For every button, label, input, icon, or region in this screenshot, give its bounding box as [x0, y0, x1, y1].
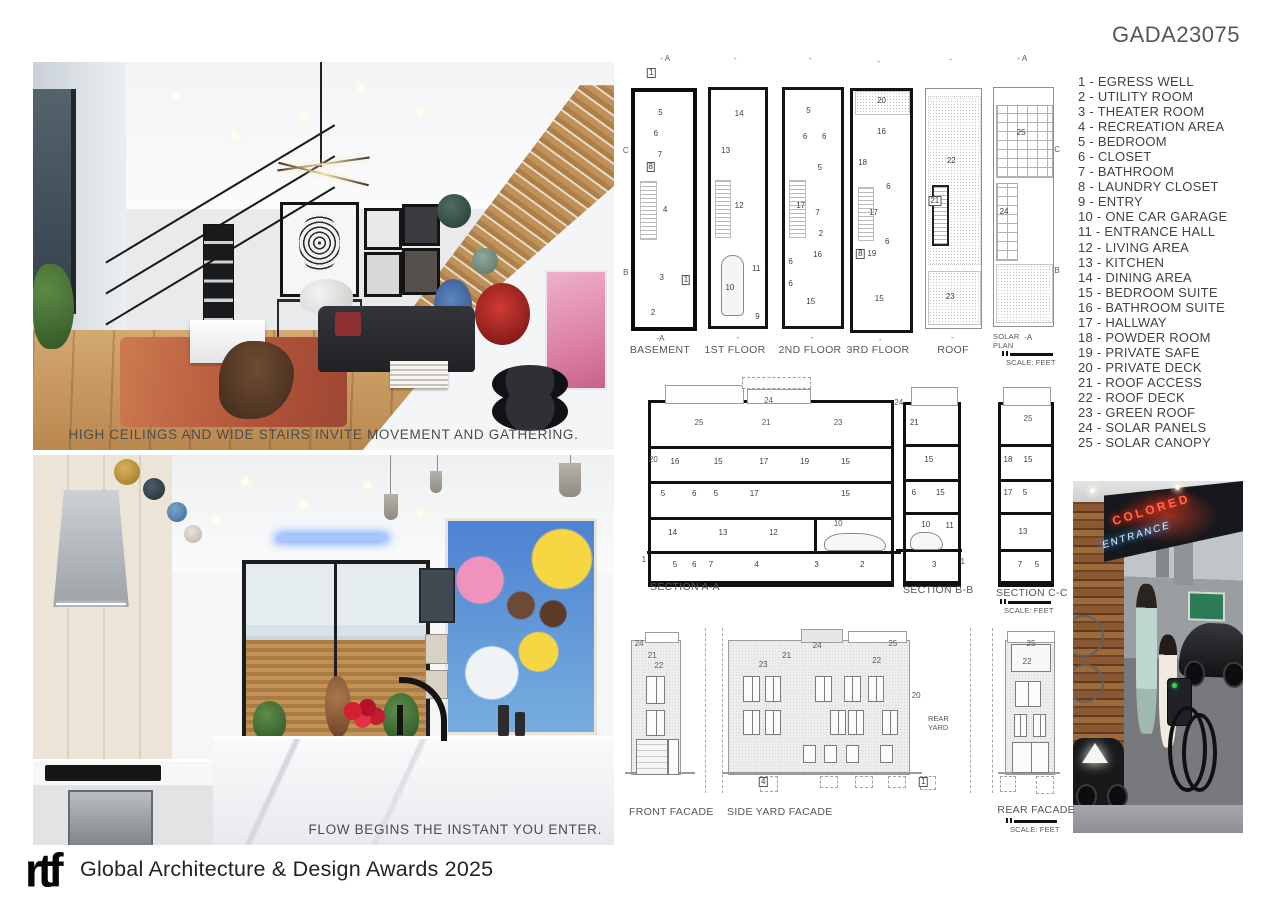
plan-label: 3RD FLOOR — [830, 344, 926, 356]
room-number: 15 — [806, 298, 815, 306]
room-number: 1 — [647, 68, 655, 78]
plan-solar: 2524- ACB-A — [993, 87, 1054, 327]
room-number: 2 — [860, 561, 864, 569]
room-number: - — [734, 55, 737, 63]
legend-item: 11 - ENTRANCE HALL — [1078, 224, 1258, 239]
room-number: 15 — [841, 490, 850, 498]
room-number: 24 — [1000, 208, 1009, 216]
room-number: - — [879, 336, 882, 344]
room-number: 19 — [800, 458, 809, 466]
floor-slab — [906, 444, 958, 447]
room-number: 25 — [695, 419, 704, 427]
facade-number: 25 — [888, 640, 897, 648]
round-red-artwork — [475, 283, 530, 345]
room-number: 7 — [1018, 561, 1022, 569]
car-wheel — [1223, 661, 1243, 688]
room-number: 4 — [754, 561, 758, 569]
mural-woman — [1136, 583, 1157, 734]
room-number: 10 — [725, 284, 734, 292]
photo-living-hall: HIGH CEILINGS AND WIDE STAIRS INVITE MOV… — [33, 62, 614, 450]
pendant-cord — [390, 455, 391, 494]
facade-number: 21 — [648, 652, 657, 660]
solar-plan-label: SOLAR PLAN — [993, 333, 1023, 350]
foundation-pit — [1000, 776, 1016, 792]
legend-item: 6 - CLOSET — [1078, 149, 1258, 164]
ceiling-light — [1175, 485, 1180, 490]
ceiling-light — [1090, 488, 1095, 493]
legend-item: 19 - PRIVATE SAFE — [1078, 345, 1258, 360]
room-number: 17 — [750, 490, 759, 498]
room-number: 10 — [921, 521, 930, 529]
room-number: - A — [1017, 55, 1027, 63]
bottle — [498, 705, 510, 736]
solar-canopy — [848, 631, 908, 643]
floor-slab — [906, 479, 958, 482]
room-number: - — [737, 334, 740, 342]
window — [844, 676, 860, 702]
ground-line — [722, 772, 922, 774]
window — [646, 676, 664, 705]
pendant-cord — [320, 62, 322, 167]
facade-front: 242122 — [631, 640, 681, 775]
room-number: 6 — [822, 133, 826, 141]
facade-label: FRONT FACADE — [629, 806, 719, 818]
legend-item: 3 - THEATER ROOM — [1078, 104, 1258, 119]
window — [1033, 714, 1047, 737]
facade-label: REAR FACADE — [985, 804, 1075, 816]
black-pouf — [492, 392, 568, 431]
room-number: 14 — [735, 110, 744, 118]
legend-item: 9 - ENTRY — [1078, 194, 1258, 209]
room-number: 8 — [646, 162, 654, 172]
room-number: 5 — [661, 490, 665, 498]
foundation-pit — [1036, 776, 1054, 794]
cooktop — [45, 765, 161, 781]
legend-item: 18 - POWDER ROOM — [1078, 330, 1258, 345]
solar-canopy-outline — [1003, 387, 1051, 406]
room-number: 15 — [875, 295, 884, 303]
scale-label: SCALE: FEET — [1010, 825, 1060, 834]
window — [868, 676, 884, 702]
room-number: 15 — [841, 458, 850, 466]
property-line — [705, 628, 706, 793]
room-number: -A — [657, 335, 665, 343]
board-code: GADA23075 — [1112, 22, 1240, 48]
awards-title: Global Architecture & Design Awards 2025 — [80, 857, 493, 882]
room-number: - — [877, 58, 880, 66]
room-number: C — [1054, 146, 1060, 154]
presentation-board: GADA23075 — [0, 0, 1273, 900]
roof-structure — [645, 632, 679, 643]
legend-item: 22 - ROOF DECK — [1078, 390, 1258, 405]
room-number: 6 — [654, 130, 658, 138]
ground-slab — [896, 549, 962, 552]
legend-item: 17 - HALLWAY — [1078, 315, 1258, 330]
section-label: SECTION B-B — [903, 584, 1003, 596]
room-number: 25 — [1017, 129, 1026, 137]
solar-panel-dashed — [742, 377, 811, 389]
garage-floor — [1073, 805, 1243, 833]
scale-label: SCALE: FEET — [1004, 606, 1054, 615]
window — [1014, 714, 1028, 737]
photo-caption: HIGH CEILINGS AND WIDE STAIRS INVITE MOV… — [33, 427, 614, 442]
room-number: 23 — [946, 293, 955, 301]
room-number: - — [809, 55, 812, 63]
plan-1st-floor: 14131210119-- — [708, 87, 768, 329]
photo-garage-mural: COLORED ENTRANCE — [1073, 481, 1243, 833]
solar-canopy-grid — [996, 105, 1053, 178]
room-number: 12 — [769, 529, 778, 537]
foundation-pit — [820, 776, 838, 788]
neon-script-sign — [276, 535, 388, 541]
plant — [253, 701, 285, 740]
plan-roof: 222123-- — [925, 88, 982, 329]
basement-window — [803, 745, 816, 763]
room-number: C — [623, 147, 629, 155]
magazine-stack — [390, 361, 448, 388]
room-number: 6 — [788, 280, 792, 288]
ground-slab — [647, 551, 901, 554]
section-b-b: 242115615101131 — [903, 402, 961, 587]
pendant-light — [384, 494, 398, 520]
legend-item: 20 - PRIVATE DECK — [1078, 360, 1258, 375]
scale-bar — [1008, 353, 1053, 356]
plan-label: ROOF — [915, 344, 991, 356]
framed-photo — [364, 252, 402, 297]
red-roses — [338, 697, 387, 732]
roof-bulkhead — [801, 629, 843, 643]
section-c-c: 2518151751375 — [998, 402, 1054, 587]
floor-slab — [1001, 479, 1051, 482]
property-line — [970, 628, 971, 793]
mural-sign — [1188, 591, 1224, 621]
facade-number: 25 — [1027, 640, 1036, 648]
room-number: 6 — [692, 490, 696, 498]
stairs — [715, 180, 731, 239]
basement-window — [846, 745, 859, 763]
section-label: SECTION C-C — [996, 587, 1096, 599]
garage-wall — [814, 517, 817, 551]
room-number: 18 — [1004, 456, 1013, 464]
room-number: 3 — [932, 561, 936, 569]
window — [830, 710, 846, 735]
room-number: 6 — [788, 258, 792, 266]
room-number: 13 — [719, 529, 728, 537]
legend-item: 16 - BATHROOM SUITE — [1078, 300, 1258, 315]
garage-door — [636, 739, 668, 774]
facade-number: 20 — [912, 692, 921, 700]
faucet-stem — [397, 705, 403, 735]
photo-caption: FLOW BEGINS THE INSTANT YOU ENTER. — [33, 822, 614, 837]
framed-photo — [402, 204, 440, 247]
stairs — [640, 181, 657, 239]
room-number: 6 — [885, 238, 889, 246]
legend-item: 10 - ONE CAR GARAGE — [1078, 209, 1258, 224]
room-number: 2 — [819, 230, 823, 238]
room-number: 17 — [796, 202, 805, 210]
colorful-mural — [448, 521, 593, 732]
room-number: 17 — [1004, 489, 1013, 497]
room-number: 4 — [663, 206, 667, 214]
room-number: 16 — [671, 458, 680, 466]
legend-item: 12 - LIVING AREA — [1078, 240, 1258, 255]
room-number: 1 — [642, 556, 646, 564]
side-window — [419, 568, 455, 623]
property-line — [722, 628, 723, 793]
room-number: 13 — [1019, 528, 1028, 536]
room-number: 24 — [894, 399, 903, 407]
room-number: 20 — [877, 97, 886, 105]
scale-bar — [1006, 601, 1051, 604]
floor-slab — [651, 446, 891, 449]
photo-kitchen: FLOW BEGINS THE INSTANT YOU ENTER. — [33, 455, 614, 845]
legend-item: 7 - BATHROOM — [1078, 164, 1258, 179]
facade-side-yard: 23212425222041 — [728, 640, 910, 775]
property-line — [992, 628, 993, 793]
legend-item: 8 - LAUNDRY CLOSET — [1078, 179, 1258, 194]
room-number: 5 — [806, 107, 810, 115]
plan-2nd-floor: 56651772166615-- — [782, 87, 844, 329]
room-number: -A — [1024, 334, 1032, 342]
legend-item: 4 - RECREATION AREA — [1078, 119, 1258, 134]
roof-access-stair — [932, 185, 949, 246]
room-number: 21 — [928, 196, 941, 206]
legend-item: 2 - UTILITY ROOM — [1078, 89, 1258, 104]
foundation-pit — [855, 776, 873, 788]
facade-rear: 2522 — [1005, 640, 1055, 775]
room-number: 15 — [936, 489, 945, 497]
room-number: 6 — [912, 489, 916, 497]
facade-number: 21 — [782, 652, 791, 660]
pendant-light — [559, 463, 581, 497]
floor-slab — [651, 481, 891, 484]
framed-photo — [402, 248, 440, 295]
window — [646, 710, 664, 736]
pyramid-lamp — [1082, 743, 1108, 763]
room-number: 19 — [867, 250, 876, 258]
room-number: 16 — [877, 128, 886, 136]
room-number: 12 — [735, 202, 744, 210]
section-label: SECTION A-A — [650, 581, 750, 593]
solar-canopy-outline — [911, 387, 958, 406]
room-number: 6 — [886, 183, 890, 191]
legend-item: 25 - SOLAR CANOPY — [1078, 435, 1258, 450]
window — [1015, 681, 1041, 707]
small-frame — [425, 634, 447, 663]
room-number: 5 — [817, 164, 821, 172]
room-number: 11 — [946, 522, 954, 530]
room-number: B — [623, 269, 628, 277]
basement-window — [824, 745, 837, 763]
room-number: 11 — [752, 265, 760, 273]
room-number: 3 — [814, 561, 818, 569]
room-number: 7 — [658, 151, 662, 159]
hood-light — [56, 603, 126, 605]
room-number: 23 — [834, 419, 843, 427]
basement-window — [880, 745, 893, 763]
roof-bulkhead-outline — [747, 389, 811, 404]
room-number: - — [949, 56, 952, 64]
window — [765, 710, 781, 735]
glass-doors — [1012, 742, 1050, 773]
foundation-pit — [888, 776, 906, 788]
room-number: 22 — [947, 157, 956, 165]
pendant-light — [430, 471, 442, 493]
facade-number: 22 — [872, 657, 881, 665]
window — [848, 710, 864, 735]
solar-canopy-outline — [665, 385, 744, 404]
floor-slab — [1001, 444, 1051, 447]
room-number: 1 — [682, 275, 690, 285]
room-number: 1 — [960, 558, 964, 566]
room-number: 20 — [649, 456, 658, 464]
room-number: 24 — [764, 397, 773, 405]
room-number: 21 — [910, 419, 919, 427]
pendant-cord — [570, 455, 571, 463]
legend-item: 13 - KITCHEN — [1078, 255, 1258, 270]
room-number: 18 — [858, 159, 867, 167]
range-hood — [53, 490, 129, 607]
window — [815, 676, 831, 702]
window — [765, 676, 781, 702]
section-a-a: 2425212320161517191556517151413121015674… — [648, 400, 894, 587]
decor-plate — [167, 502, 187, 522]
floor-slab — [1001, 512, 1051, 515]
floor-slab — [651, 517, 891, 520]
room-number: 9 — [755, 313, 759, 321]
scale-bar — [1012, 820, 1057, 823]
facade-number: 1 — [919, 777, 927, 787]
room-number: 10 — [834, 520, 843, 528]
room-number: - — [811, 334, 814, 342]
facade-number: 23 — [759, 661, 768, 669]
entry-door — [668, 739, 680, 774]
pendant-cord — [437, 455, 438, 471]
room-number: 15 — [1024, 456, 1033, 464]
legend-item: 23 - GREEN ROOF — [1078, 405, 1258, 420]
room-number: 15 — [714, 458, 723, 466]
room-number: 5 — [673, 561, 677, 569]
entry-door — [204, 225, 233, 326]
bottle — [515, 712, 524, 735]
green-roof-hatch — [996, 264, 1053, 323]
plant — [33, 264, 74, 349]
window — [743, 676, 759, 702]
legend-item: 24 - SOLAR PANELS — [1078, 420, 1258, 435]
room-number: 5 — [714, 490, 718, 498]
plan-basement: 567843211- ACB-A — [631, 88, 697, 331]
rtf-logo: rtf — [25, 842, 59, 897]
room-number: 8 — [856, 249, 864, 259]
room-number: 2 — [651, 309, 655, 317]
facade-number: 24 — [813, 642, 822, 650]
legend-item: 15 - BEDROOM SUITE — [1078, 285, 1258, 300]
room-number: 7 — [709, 561, 713, 569]
framed-photo — [364, 208, 402, 251]
room-number: 17 — [869, 209, 878, 217]
facade-number: 22 — [1023, 658, 1032, 666]
room-number: 14 — [668, 529, 677, 537]
room-number: 17 — [759, 458, 768, 466]
ground-slab — [1001, 549, 1051, 552]
solar-panels-grid — [996, 183, 1018, 261]
wall-plate-art — [472, 248, 498, 274]
rear-yard-label: REAR YARD — [928, 714, 968, 732]
room-number: B — [1054, 267, 1059, 275]
scale-label: SCALE: FEET — [1006, 358, 1056, 367]
room-number: 21 — [762, 419, 771, 427]
legend-item: 5 - BEDROOM — [1078, 134, 1258, 149]
room-number: - — [951, 334, 954, 342]
room-number: 5 — [1023, 489, 1027, 497]
room-number: 15 — [924, 456, 933, 464]
window — [882, 710, 898, 735]
room-number: 5 — [1035, 561, 1039, 569]
facade-number: 24 — [635, 640, 644, 648]
legend-item: 14 - DINING AREA — [1078, 270, 1258, 285]
room-number: - A — [660, 55, 670, 63]
charger-cable — [1182, 713, 1217, 791]
room-number: 3 — [659, 274, 663, 282]
facade-label: SIDE YARD FACADE — [727, 806, 847, 818]
facade-number: 4 — [759, 777, 767, 787]
pillow — [335, 312, 361, 335]
car-side — [824, 533, 886, 551]
room-number: 25 — [1024, 415, 1033, 423]
room-number: 16 — [813, 251, 822, 259]
sink — [358, 755, 486, 810]
room-number: 7 — [815, 209, 819, 217]
room-number: 5 — [658, 109, 662, 117]
floor-slab — [906, 512, 958, 515]
facade-number: 22 — [654, 662, 663, 670]
legend-item: 21 - ROOF ACCESS — [1078, 375, 1258, 390]
room-legend: 1 - EGRESS WELL2 - UTILITY ROOM3 - THEAT… — [1078, 74, 1258, 450]
ceiling-light — [300, 502, 307, 509]
legend-item: 1 - EGRESS WELL — [1078, 74, 1258, 89]
wall-plate-art — [437, 194, 471, 228]
car-side — [910, 532, 943, 550]
room-number: 6 — [692, 561, 696, 569]
window — [743, 710, 759, 735]
room-number: 13 — [721, 147, 730, 155]
room-number: 6 — [803, 133, 807, 141]
plan-3rd-floor: 201618617681915-- — [850, 88, 913, 333]
ceiling-light — [231, 132, 238, 139]
